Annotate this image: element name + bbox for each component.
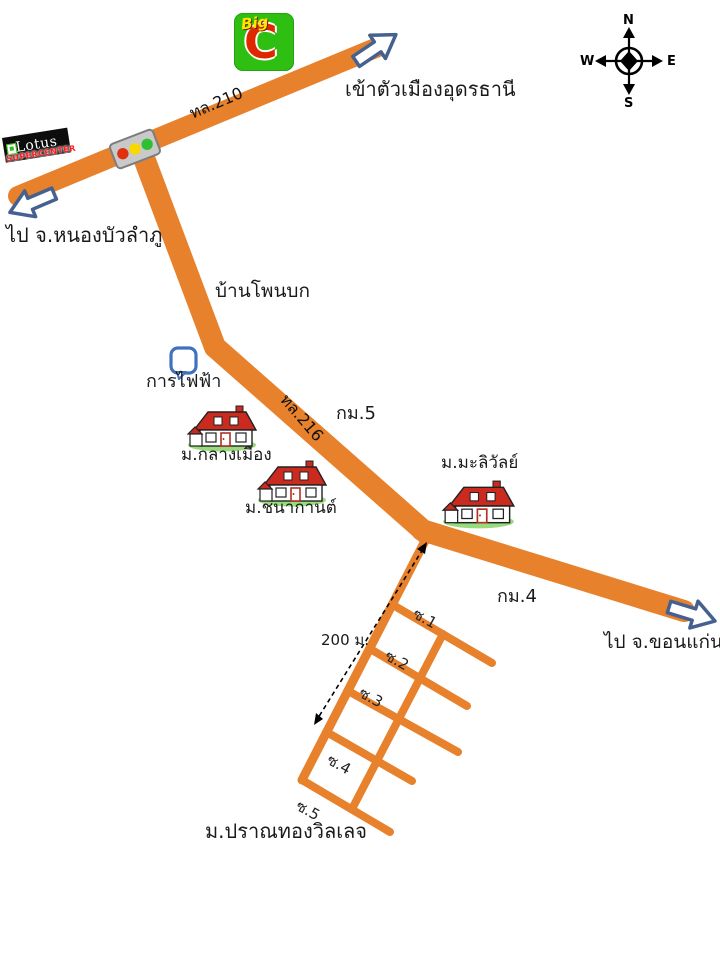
compass-north-label: N xyxy=(623,13,634,28)
road-highway-216-upper xyxy=(141,150,215,347)
maliwan-label: ม.มะลิวัลย์ xyxy=(441,454,518,473)
chanakan-label: ม.ชนากานต์ xyxy=(245,499,337,518)
klangmueang-label: ม.กลางเมือง xyxy=(181,446,272,465)
khonkaen-destination-label: ไป จ.ขอนแก่น xyxy=(604,632,720,653)
distance-200m-label: 200 ม. xyxy=(321,632,369,649)
road-highway-210 xyxy=(18,47,378,196)
road-to-khonkaen xyxy=(422,530,684,611)
map-canvas xyxy=(0,0,720,960)
house-icon-maliwan xyxy=(443,481,514,528)
compass-east-label: E xyxy=(667,54,676,69)
bigc-logo: C Big xyxy=(234,13,294,71)
banphonbok-label: บ้านโพนบก xyxy=(215,281,310,302)
nongbua-destination-label: ไป จ.หนองบัวลำภู xyxy=(6,224,162,246)
bigc-word: Big xyxy=(240,13,269,34)
km4-label: กม.4 xyxy=(497,587,537,607)
compass-rose-icon xyxy=(595,27,663,95)
km5-label: กม.5 xyxy=(336,404,376,424)
udon-destination-label: เข้าตัวเมืองอุดรธานี xyxy=(345,78,516,100)
compass-south-label: S xyxy=(624,96,633,111)
compass-west-label: W xyxy=(580,54,594,69)
electricity-label: การไฟฟ้า xyxy=(146,372,221,392)
pranthong-village-label: ม.ปราณทองวิลเลจ xyxy=(205,820,367,842)
